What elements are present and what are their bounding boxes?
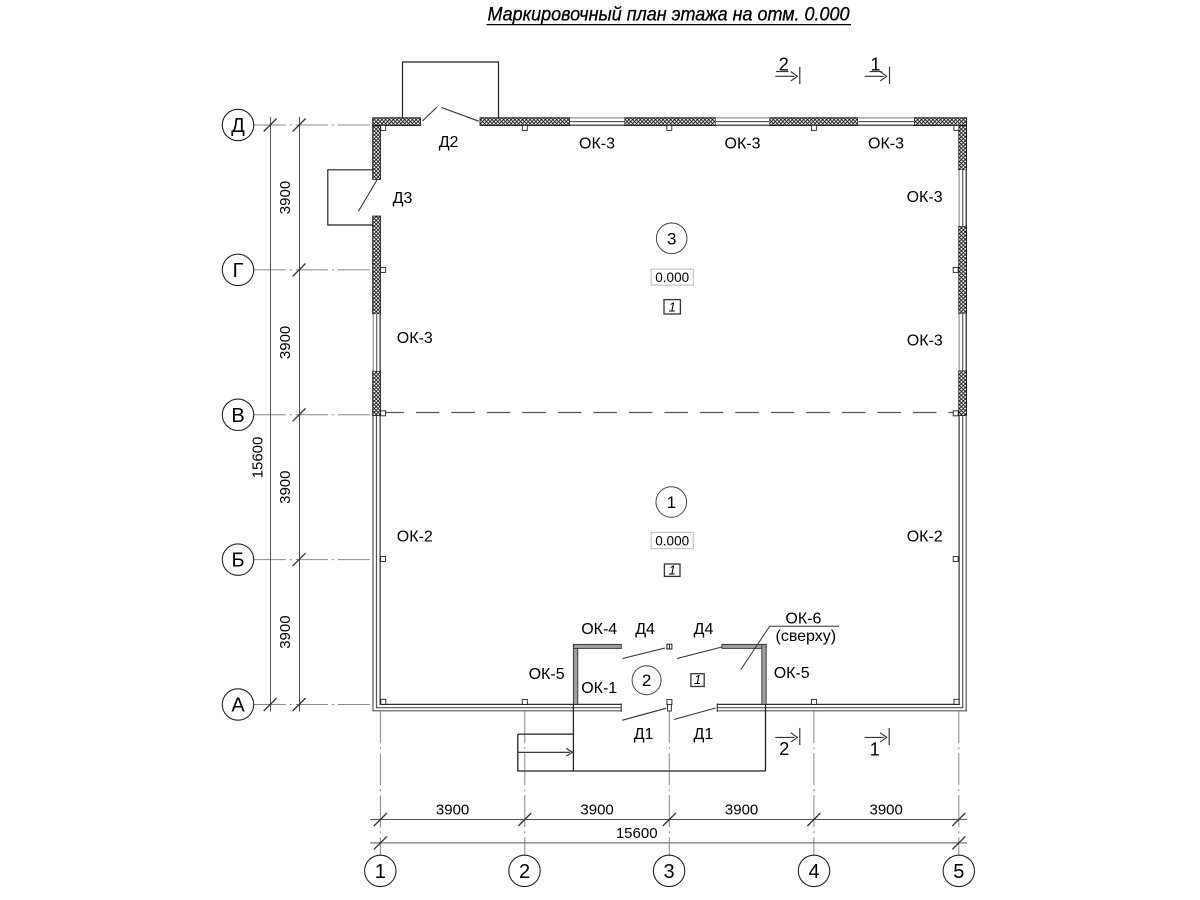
svg-text:Д1: Д1 <box>694 726 714 743</box>
svg-text:2: 2 <box>642 671 651 690</box>
svg-text:Д4: Д4 <box>694 621 714 638</box>
svg-text:А: А <box>231 695 245 717</box>
svg-text:15600: 15600 <box>616 825 658 842</box>
svg-text:3900: 3900 <box>870 802 903 819</box>
svg-text:3900: 3900 <box>580 802 613 819</box>
svg-text:ОК-1: ОК-1 <box>581 680 617 697</box>
svg-text:ОК-5: ОК-5 <box>774 665 810 682</box>
svg-text:3: 3 <box>667 229 676 248</box>
svg-text:5: 5 <box>953 861 964 883</box>
svg-text:1: 1 <box>870 740 880 760</box>
svg-text:Б: Б <box>231 550 244 572</box>
svg-text:ОК-2: ОК-2 <box>907 529 943 546</box>
svg-text:Д: Д <box>231 115 245 137</box>
svg-text:ОК-4: ОК-4 <box>581 621 617 638</box>
svg-text:15600: 15600 <box>250 437 267 479</box>
svg-text:(сверху): (сверху) <box>776 628 837 645</box>
svg-text:3900: 3900 <box>277 181 294 214</box>
svg-text:1: 1 <box>694 672 701 687</box>
svg-text:3900: 3900 <box>277 471 294 504</box>
svg-text:3: 3 <box>664 861 675 883</box>
svg-text:Д2: Д2 <box>439 134 459 151</box>
svg-text:ОК-3: ОК-3 <box>397 330 433 347</box>
svg-text:3900: 3900 <box>436 802 469 819</box>
svg-text:В: В <box>231 405 244 427</box>
svg-text:0.000: 0.000 <box>655 533 689 548</box>
svg-text:ОК-3: ОК-3 <box>907 189 943 206</box>
svg-text:Г: Г <box>233 260 244 282</box>
svg-text:ОК-6: ОК-6 <box>785 611 821 628</box>
svg-text:Д4: Д4 <box>635 621 655 638</box>
svg-text:ОК-3: ОК-3 <box>907 332 943 349</box>
svg-text:1: 1 <box>669 300 676 315</box>
svg-text:ОК-3: ОК-3 <box>725 136 761 153</box>
svg-text:2: 2 <box>779 739 789 759</box>
svg-text:2: 2 <box>519 861 530 883</box>
svg-text:1: 1 <box>669 562 676 577</box>
svg-text:ОК-3: ОК-3 <box>579 136 615 153</box>
svg-text:ОК-2: ОК-2 <box>397 529 433 546</box>
svg-text:4: 4 <box>808 861 819 883</box>
svg-text:Маркировочный план этажа на от: Маркировочный план этажа на отм. 0.000 <box>488 4 850 26</box>
svg-text:3900: 3900 <box>725 802 758 819</box>
svg-text:0.000: 0.000 <box>655 270 689 285</box>
svg-text:1: 1 <box>375 861 386 883</box>
svg-text:Д3: Д3 <box>393 190 413 207</box>
svg-text:3900: 3900 <box>277 615 294 648</box>
svg-text:ОК-5: ОК-5 <box>529 666 565 683</box>
svg-text:Д1: Д1 <box>634 726 654 743</box>
svg-text:1: 1 <box>667 493 676 512</box>
svg-text:ОК-3: ОК-3 <box>868 136 904 153</box>
svg-text:3900: 3900 <box>277 326 294 359</box>
